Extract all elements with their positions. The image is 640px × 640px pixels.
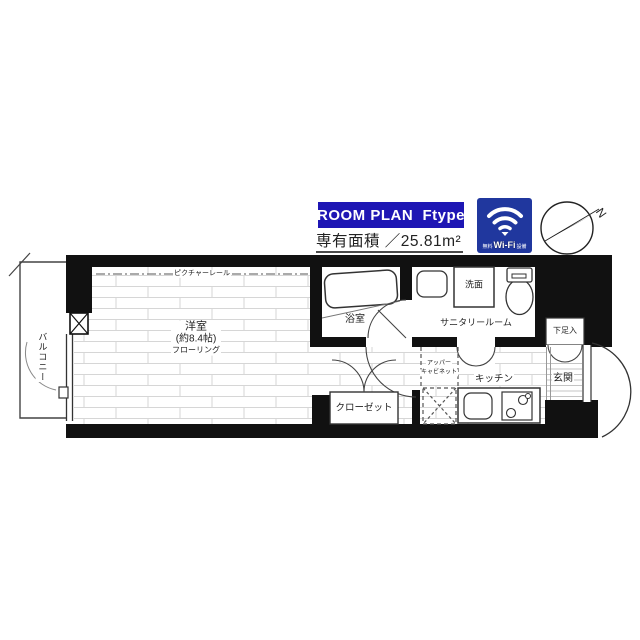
kitchen-sink xyxy=(464,393,492,419)
floorplan-page: ROOM PLAN Ftype 専有面積 ／25.81m² 無料 Wi-Fi 設… xyxy=(0,0,640,640)
upper-cabinet-label-2: キャビネット xyxy=(420,369,458,376)
shoe-box-label: 下足入 xyxy=(552,326,578,336)
kitchen-counter xyxy=(458,388,540,423)
bath-label: 浴室 xyxy=(344,314,366,326)
main-room-floor: フローリング xyxy=(172,346,220,356)
balcony-label: バルコニー xyxy=(36,332,49,382)
main-room-name: 洋室 xyxy=(172,321,220,334)
upper-cabinet-label-1: アッパー xyxy=(426,360,452,367)
main-room-label: 洋室 (約8.4帖) フローリング xyxy=(171,321,221,356)
washbasin-bowl xyxy=(417,271,447,297)
pipe-space-box xyxy=(70,313,88,334)
toilet xyxy=(506,268,533,315)
floor-plan xyxy=(0,0,640,640)
shoe-box-doors xyxy=(546,345,584,363)
picture-rail-label: ピクチャーレール xyxy=(173,270,231,278)
washbasin-label: 洗面 xyxy=(464,280,484,291)
sanitary-room-label: サニタリールーム xyxy=(439,318,513,329)
kitchen-label: キッチン xyxy=(474,373,514,384)
sanitary-doors xyxy=(457,347,495,366)
main-room-size: (約8.4帖) xyxy=(172,334,220,346)
balcony-window xyxy=(59,334,73,421)
closet-label: クローゼット xyxy=(334,402,393,413)
entrance-label: 玄関 xyxy=(552,373,574,385)
north-arrow-icon xyxy=(541,202,599,254)
